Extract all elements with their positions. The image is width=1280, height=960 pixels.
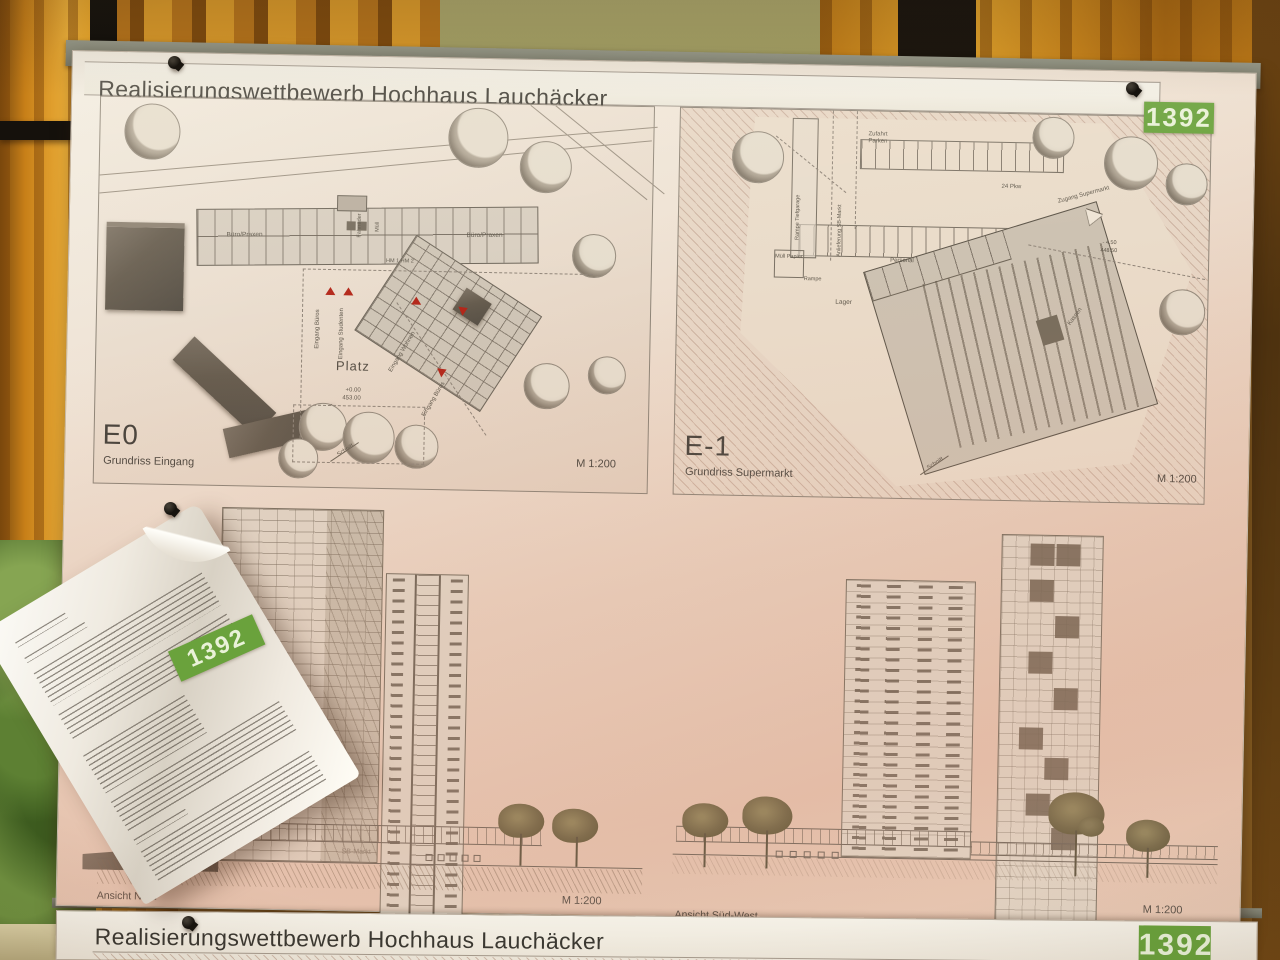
tree-plan [124,103,181,160]
plan-code: E-1 [684,430,731,463]
access-label: Zufahrt Parken [868,131,902,145]
window-column [387,578,405,908]
base-window [437,854,444,861]
level-label: - 4.50 [1102,240,1116,247]
window-column [852,584,871,850]
tree-plan [1159,289,1206,336]
tree-grid-outline [292,404,425,465]
level-label: 448.50 [1100,248,1117,255]
staff-label: Personal [890,258,914,265]
room-label: Müll [375,202,382,232]
elevation-scale: M 1:200 [1143,904,1183,917]
base-window [473,855,480,862]
street-line [100,127,658,176]
plan-scale: M 1:200 [576,458,616,471]
sb-markt-label: SB-Markt [342,848,371,857]
tree-plan [587,356,626,395]
storage-label: Lager [835,299,852,307]
entrance-marker [411,297,421,305]
facade-panel [1019,727,1043,749]
poster2-title: Realisierungswettbewerb Hochhaus Lauchäc… [95,923,605,955]
elevation-scale: M 1:200 [562,895,602,908]
window-column [914,585,933,851]
curtain-edge-right [1252,0,1280,960]
pushpin [182,916,195,929]
entrance-marker [325,287,335,295]
pushpin [168,56,181,69]
facade-panel [1030,543,1054,565]
tree-trunk [519,834,522,866]
elevator [347,221,356,230]
tree-elevation [497,803,544,868]
base-window [425,854,432,861]
facade-panel [1025,793,1049,815]
level-label: +0.00 [345,387,360,394]
room-label: Büro/Praxen [466,232,502,240]
pushpin [1126,82,1139,95]
entrance-label: Eingang Studenten [338,279,346,359]
base-window [461,855,468,862]
plan-caption: Grundriss Eingang [103,455,194,469]
waste-label: Müll Papier [775,254,803,261]
tree-plan [523,363,570,410]
plan-code: E0 [102,419,139,452]
platz-label: Platz [336,359,370,375]
tree-plan [448,107,509,168]
tree-plan [1104,136,1159,191]
level-label: 453.00 [342,395,360,402]
photo-scene: Realisierungswettbewerb Hochhaus Lauchäc… [0,0,1280,960]
room-label: HM 1 HM 2 [386,258,414,265]
entry-number-badge: 1392 [1144,102,1215,134]
plan-panel-e0: Büro/Praxen Büro/Praxen Fahrräder Müll H… [93,96,655,495]
tree-elevation [1047,792,1105,877]
facade-panel [1056,544,1080,566]
parking-count-label: 24 Pkw [1001,184,1021,191]
facade-glass [320,510,384,862]
plan-panel-e1: Rampe Tiefgarage Anlieferung SB-Markt Zu… [673,107,1212,505]
facade-panel [1044,758,1068,780]
facade-panel [1054,688,1078,710]
facade-panel [1055,616,1079,638]
ramp-label: Rampe [804,276,822,283]
axon-block [105,222,185,311]
room-label: Fahrräder [356,198,363,238]
poster2-entry-badge: 1392 [1139,925,1211,960]
tree-plan [519,141,572,194]
street-line [555,105,664,194]
tree-plan [572,234,617,279]
window-column [944,586,963,852]
facade-panel [1030,579,1054,601]
entrance-label: Eingang Büros [314,283,322,349]
facade-panel [1028,651,1052,673]
tree-plan [1165,163,1208,206]
tree-elevation [551,808,598,869]
pushpin [164,502,177,515]
tree-crown [1078,816,1104,836]
room-label: Büro/Praxen [226,231,262,239]
plan-scale: M 1:200 [1157,473,1197,486]
plan-caption: Grundriss Supermarkt [685,466,793,480]
window-column [882,585,901,851]
tree-crown [742,796,793,835]
entrance-label: Eingang Büros [421,381,447,418]
tower-sw-left [841,579,976,859]
tree-trunk [1074,830,1077,876]
base-window [449,854,456,861]
tree-trunk [575,837,578,867]
